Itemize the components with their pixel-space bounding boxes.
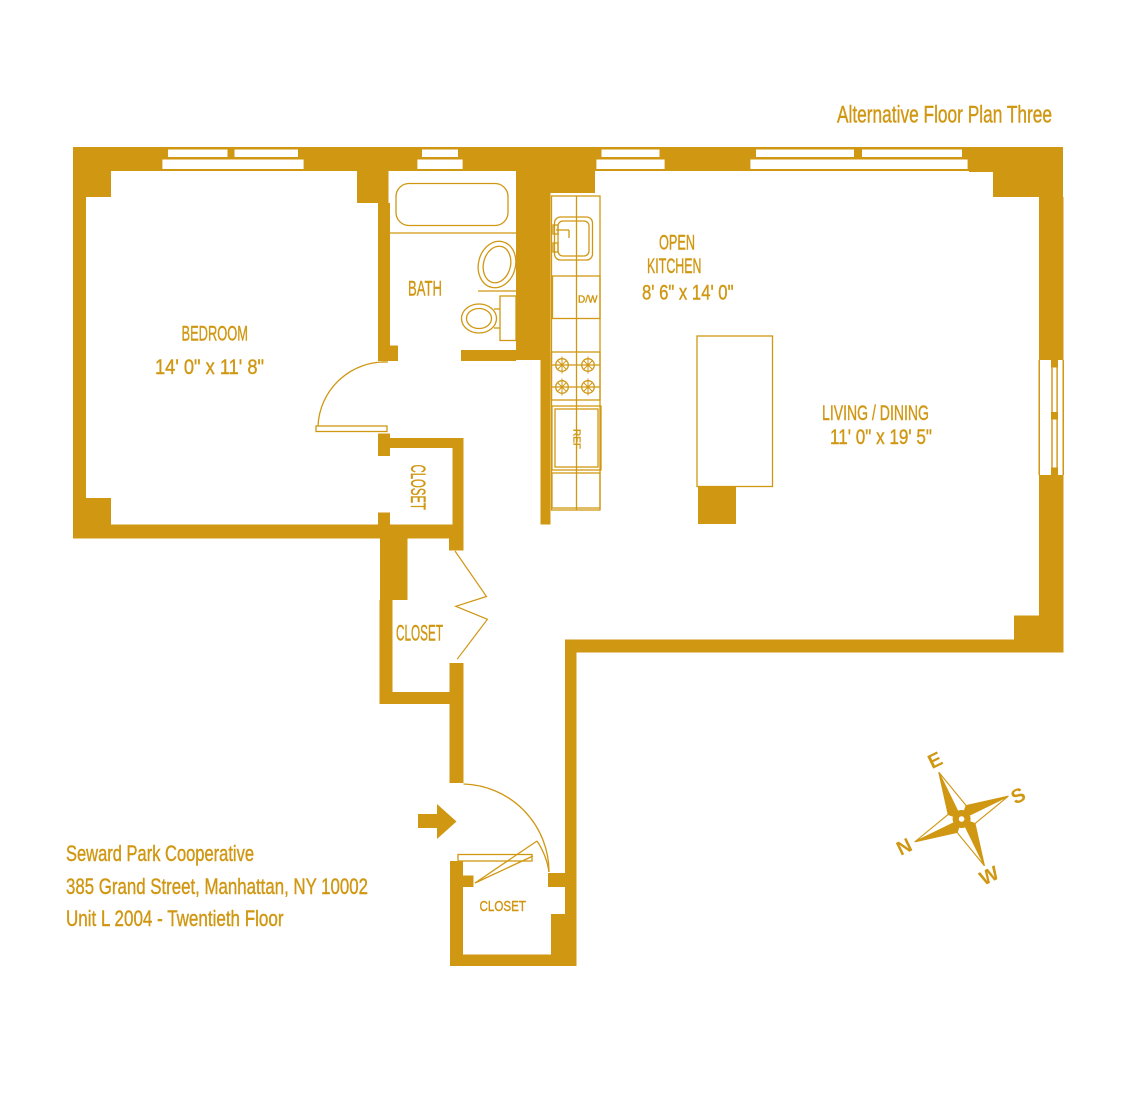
svg-text:REF: REF [571,429,582,449]
svg-text:BEDROOM: BEDROOM [182,322,249,346]
svg-text:CLOSET: CLOSET [396,621,443,646]
svg-text:OPEN: OPEN [659,232,695,255]
svg-text:LIVING / DINING: LIVING / DINING [822,401,929,425]
svg-text:14' 0" x 11' 8": 14' 0" x 11' 8" [155,355,264,379]
svg-text:Alternative Floor Plan Three: Alternative Floor Plan Three [837,102,1052,129]
svg-text:CLOSET: CLOSET [480,898,527,915]
svg-text:Unit L 2004 - Twentieth Floor: Unit L 2004 - Twentieth Floor [66,906,284,931]
svg-text:8' 6" x 14' 0": 8' 6" x 14' 0" [642,282,734,305]
svg-text:BATH: BATH [408,276,442,300]
svg-text:CLOSET: CLOSET [406,465,429,511]
svg-text:KITCHEN: KITCHEN [647,255,702,278]
svg-text:Seward Park Cooperative: Seward Park Cooperative [66,841,254,866]
svg-text:11' 0" x 19' 5": 11' 0" x 19' 5" [830,425,932,449]
svg-text:D/W: D/W [578,295,598,306]
svg-text:385 Grand Street, Manhattan, N: 385 Grand Street, Manhattan, NY 10002 [66,874,368,899]
